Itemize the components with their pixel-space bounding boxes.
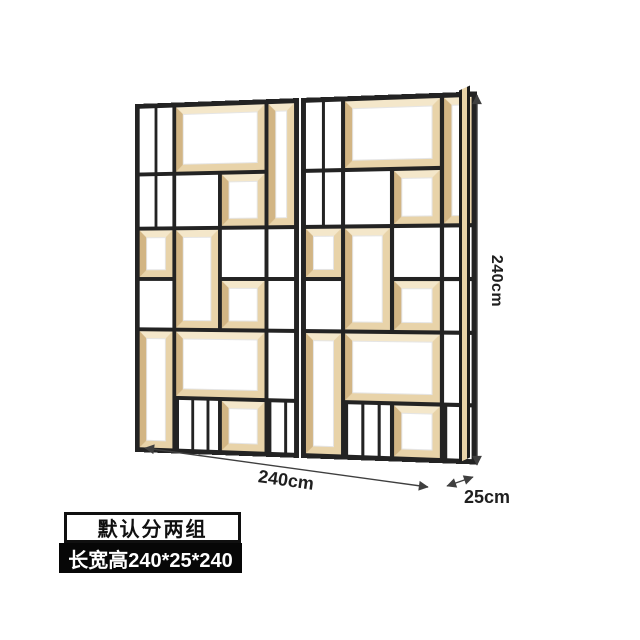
shelf-cell-wood	[394, 170, 440, 224]
shelf-cell-open	[394, 228, 440, 277]
shelf-cell-bars	[345, 404, 390, 456]
shelf-cell-open	[345, 171, 390, 224]
shelf-cell-wood	[176, 230, 218, 328]
product-image: 240cm 240cm 25cm 默认分两组 长宽高240*25*240	[0, 0, 640, 640]
shelf-cell-wood	[222, 401, 265, 452]
shelf-cell-wood	[306, 333, 341, 454]
shelf	[135, 91, 477, 464]
shelf-group	[135, 98, 299, 458]
shelf-cell-split	[306, 102, 341, 169]
shelf-cell-wood	[140, 230, 173, 277]
shelf-cell-split	[306, 172, 341, 225]
shelf-cell-wood	[268, 103, 294, 225]
shelf-cell-bars	[268, 402, 294, 453]
shelf-cell-wood	[140, 331, 173, 448]
shelf-cell-open	[268, 333, 294, 399]
group-note-badge: 默认分两组	[64, 512, 241, 543]
shelf-cell-bars	[176, 400, 218, 450]
width-dimension-label: 240cm	[245, 465, 327, 497]
size-note-badge: 长宽高240*25*240	[59, 543, 242, 573]
shelf-cell-open	[222, 229, 265, 277]
shelf-cell-split	[140, 176, 173, 227]
shelf-cell-wood	[345, 228, 390, 330]
shelf-side-panel	[459, 86, 470, 463]
height-dimension-label: 240cm	[487, 249, 505, 313]
shelf-group	[301, 91, 477, 464]
shelf-cell-wood	[345, 98, 440, 168]
shelf-cell-open	[306, 281, 341, 329]
shelf-cell-wood	[176, 332, 264, 399]
depth-dimension-label: 25cm	[457, 487, 517, 508]
shelf-cell-open	[140, 281, 173, 328]
shelf-cell-open	[268, 281, 294, 329]
shelf-cell-open	[268, 229, 294, 277]
shelf-cell-wood	[222, 281, 265, 329]
shelf-cell-wood	[222, 174, 265, 226]
shelf-cell-split	[140, 108, 173, 173]
shelf-cell-wood	[345, 334, 440, 403]
depth-dimension-line	[447, 477, 473, 486]
shelf-cell-open	[176, 175, 218, 227]
shelf-cell-wood	[176, 104, 264, 171]
shelf-cell-wood	[306, 229, 341, 277]
shelf-cell-wood	[394, 405, 440, 458]
shelf-cell-wood	[394, 281, 440, 330]
